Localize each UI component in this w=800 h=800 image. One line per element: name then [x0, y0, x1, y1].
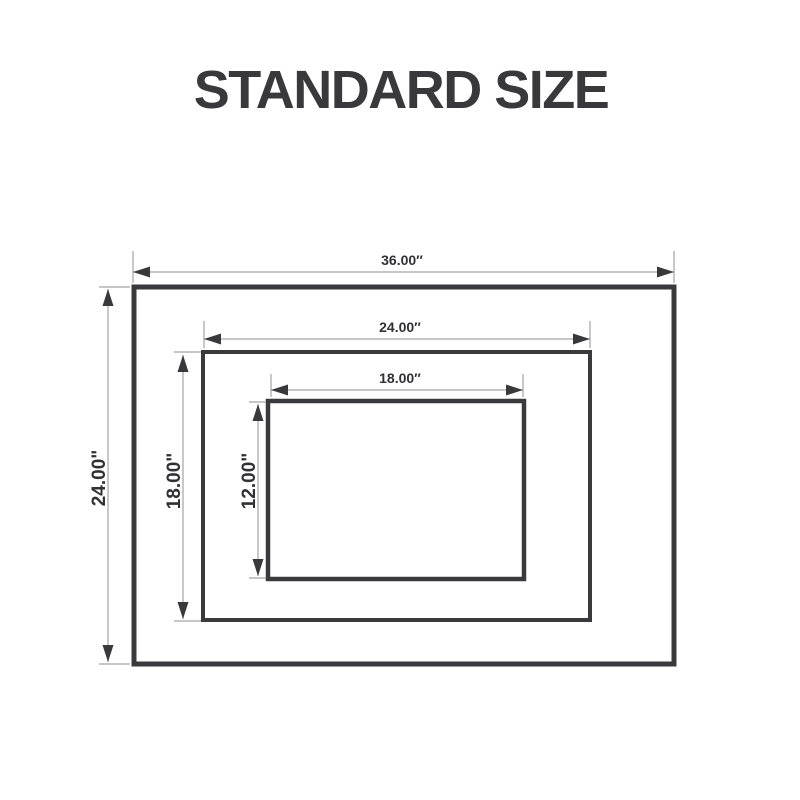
diagram-canvas: STANDARD SIZE 36.00″ 24.00″ 18.00″: [0, 0, 800, 800]
dimension-width-outer: 36.00″: [133, 251, 674, 283]
inner-size-rectangle: [268, 401, 524, 579]
dimension-width-inner: 18.00″: [271, 370, 523, 397]
dimension-height-inner: 12.00": [239, 402, 266, 578]
dimension-label-width-middle: 24.00″: [379, 319, 421, 335]
dimension-height-middle: 18.00": [164, 352, 201, 621]
dimension-label-height-inner: 12.00": [239, 453, 260, 510]
dimension-label-width-outer: 36.00″: [381, 252, 423, 268]
dimension-label-height-outer: 24.00": [89, 450, 110, 507]
dimension-width-middle: 24.00″: [204, 319, 590, 348]
size-chart-diagram: STANDARD SIZE 36.00″ 24.00″ 18.00″: [0, 0, 800, 800]
dimension-height-outer: 24.00": [89, 287, 130, 664]
page-title: STANDARD SIZE: [194, 60, 609, 120]
dimension-label-height-middle: 18.00": [164, 453, 185, 510]
outer-size-rectangle: [134, 287, 674, 664]
dimension-label-width-inner: 18.00″: [379, 370, 421, 386]
